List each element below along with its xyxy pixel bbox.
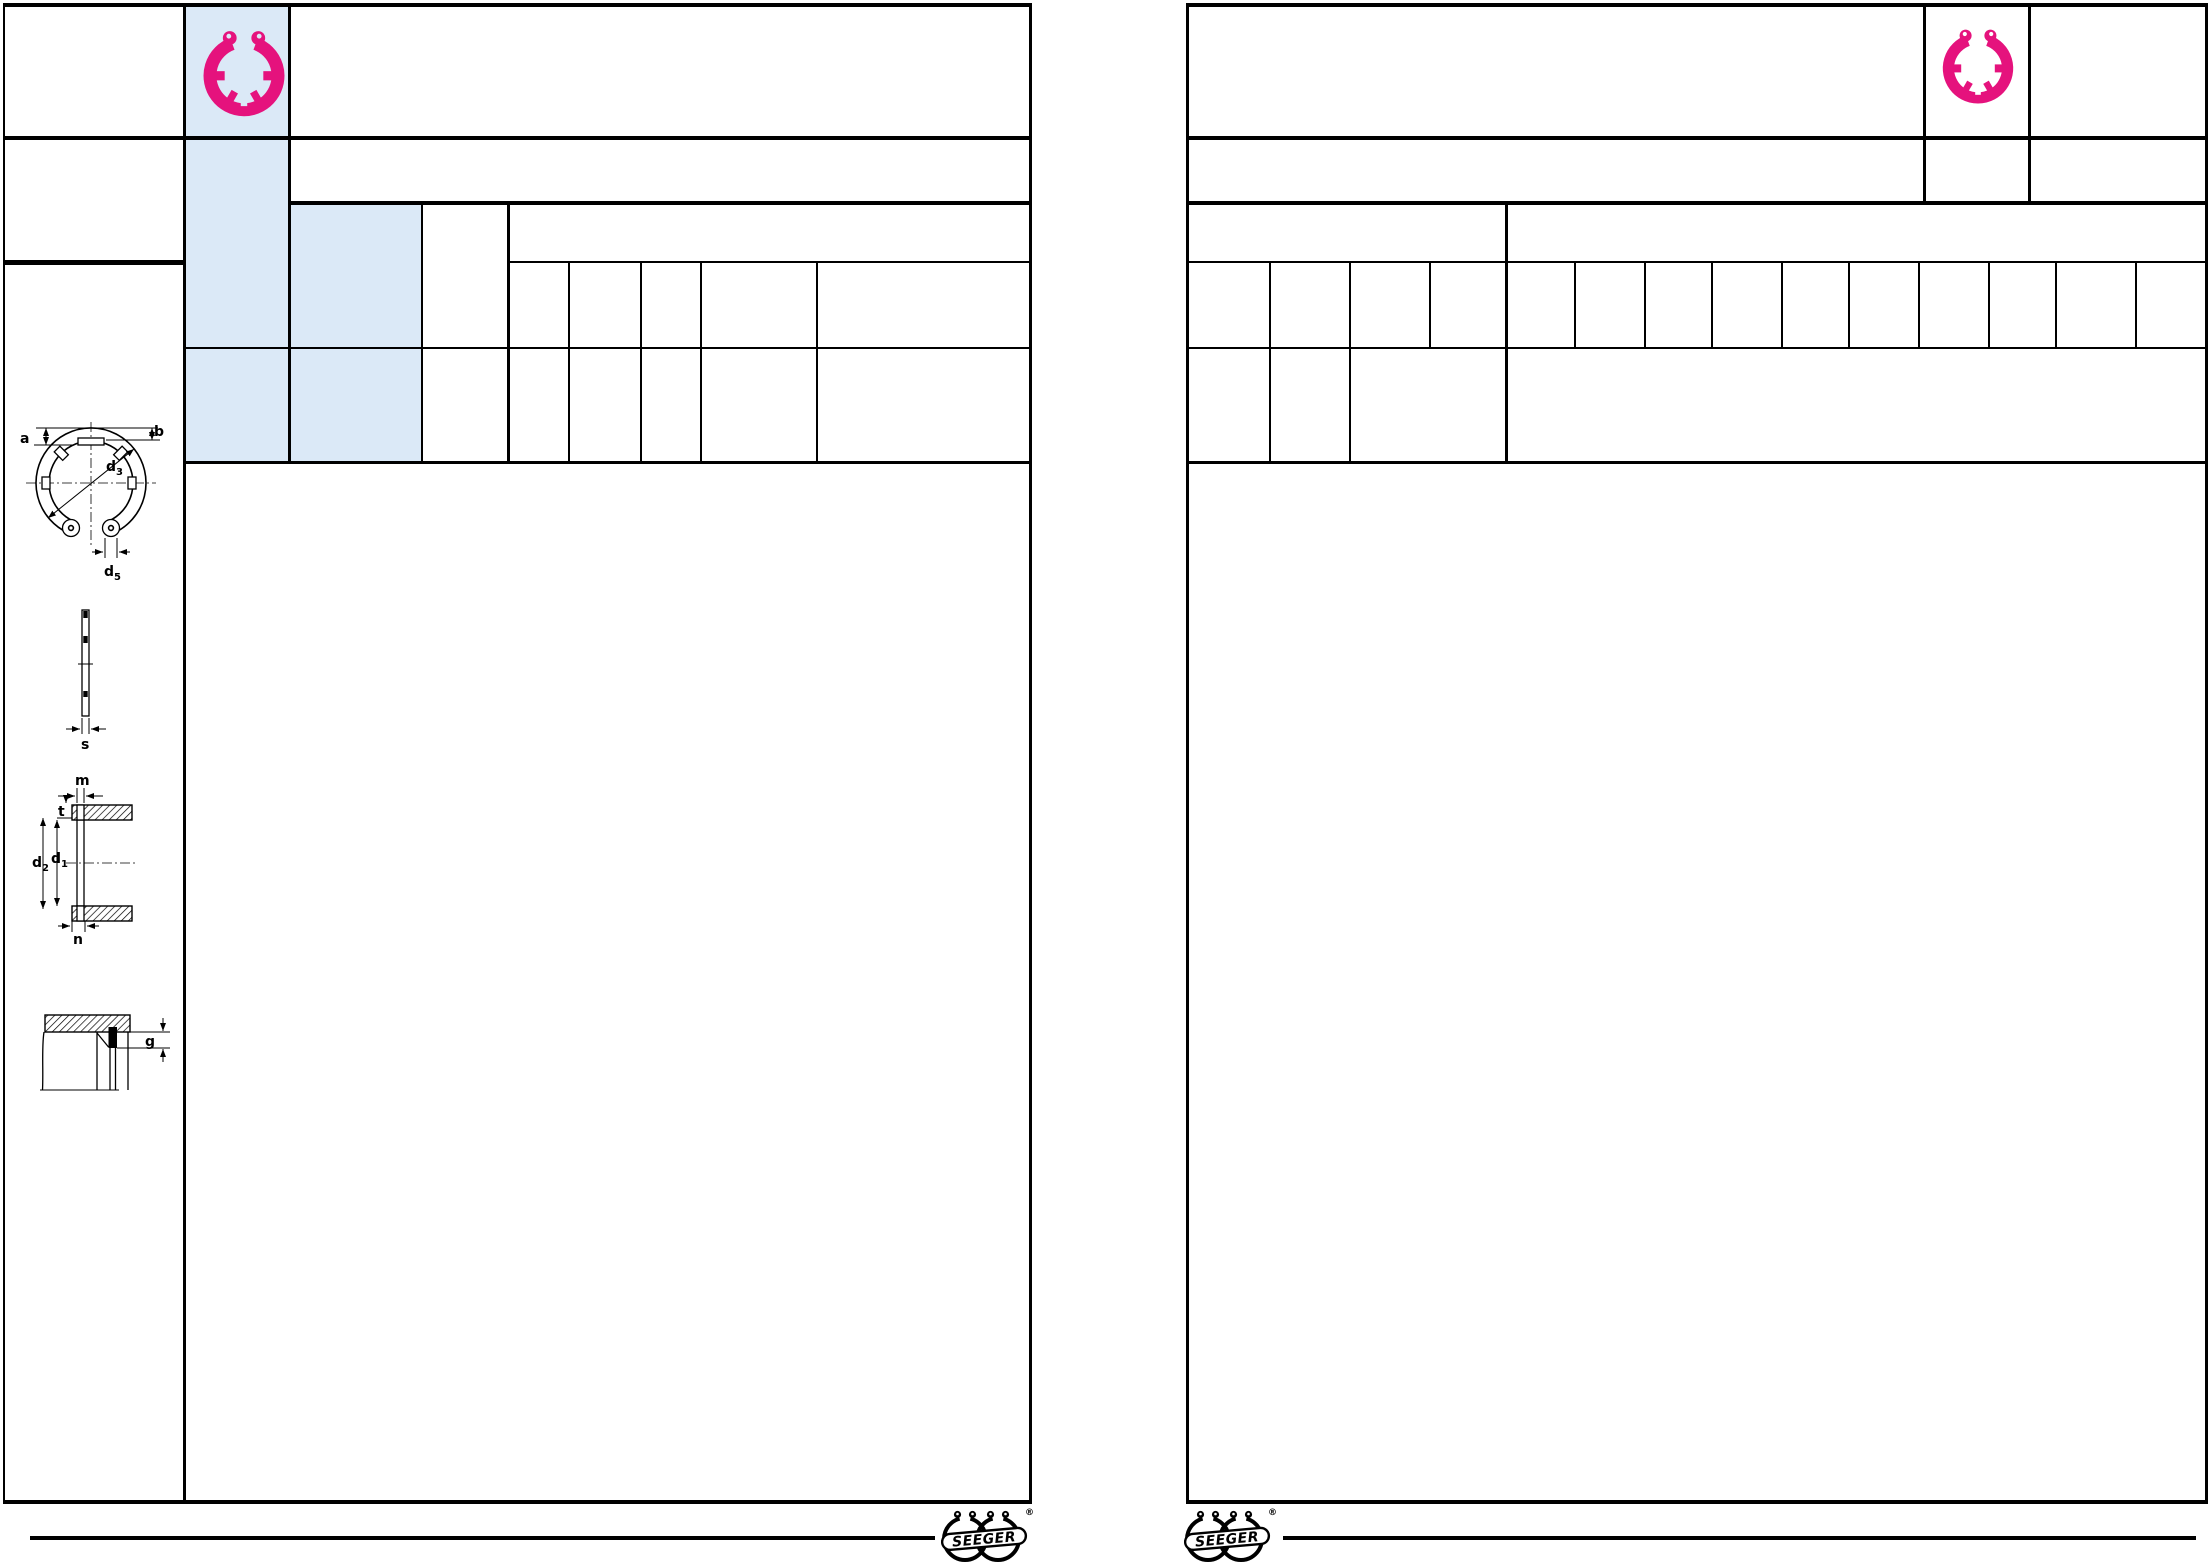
grid-line [4, 3, 1032, 7]
dim-label-a: a [20, 431, 29, 447]
grid-line [1505, 201, 1508, 463]
grid-line [1848, 261, 1850, 349]
header-cell-blue [290, 347, 423, 463]
grid-line [700, 261, 702, 463]
grid-line [1781, 261, 1783, 349]
seeger-logo: SEEGER ® [1184, 1506, 1278, 1568]
seeger-logo: SEEGER ® [941, 1506, 1035, 1568]
dim-label-n: n [73, 932, 83, 948]
dim-label-m: m [75, 773, 90, 789]
dim-label-g: g [145, 1034, 155, 1050]
grid-line [1186, 3, 2208, 7]
grid-line [1644, 261, 1646, 349]
grid-line [640, 261, 642, 463]
grid-line [1029, 3, 1032, 1504]
grid-line [185, 461, 1032, 464]
grid-line [507, 201, 510, 463]
grid-line [4, 1500, 1032, 1504]
circlip-icon [198, 26, 290, 120]
header-cell-blue [185, 347, 290, 463]
ring-front-view-drawing: a b d3 d5 [8, 416, 170, 582]
dim-label-s: s [81, 737, 89, 753]
circlip-icon [1938, 25, 2018, 107]
grid-line [3, 3, 5, 1504]
grid-line [1186, 201, 2208, 205]
grid-line [185, 347, 1032, 349]
grid-line [1429, 261, 1431, 349]
ring-side-view-drawing: s [56, 596, 120, 756]
dim-label-d1: d1 [51, 851, 68, 870]
grid-line [2028, 3, 2031, 205]
grid-line [568, 261, 570, 463]
grid-line [4, 136, 1032, 140]
grid-line [1186, 136, 2208, 140]
grid-line [508, 261, 1032, 263]
catalog-spread: a b d3 d5 s [0, 0, 2212, 1568]
grid-line [1186, 3, 1189, 1504]
grid-line [1186, 1500, 2208, 1504]
dim-label-t: t [58, 804, 65, 820]
grid-line [1711, 261, 1713, 349]
header-cell-blue [290, 201, 423, 349]
registered-mark: ® [1268, 1508, 1277, 1518]
grid-line [1988, 261, 1990, 349]
grid-line [4, 260, 186, 265]
dim-label-d2: d2 [32, 855, 49, 874]
header-cell-blue [185, 136, 290, 349]
grid-line [288, 201, 1032, 205]
grid-line [2205, 3, 2208, 1504]
grid-line [1923, 3, 1926, 205]
grid-line [1574, 261, 1576, 349]
grid-line [1283, 1536, 2196, 1540]
dim-label-b: b [154, 424, 164, 440]
grid-line [30, 1536, 935, 1540]
groove-section-drawing: m t d2 d1 n [10, 770, 170, 950]
grid-line [1349, 261, 1351, 463]
grid-line [2135, 261, 2137, 349]
dim-label-d3: d3 [106, 459, 123, 478]
grid-line [1186, 461, 2208, 464]
grid-line [816, 261, 818, 463]
grid-line [183, 3, 186, 1504]
edge-detail-drawing: g [15, 1005, 185, 1105]
dim-label-d5: d5 [104, 564, 121, 582]
grid-line [1918, 261, 1920, 349]
grid-line [2055, 261, 2057, 349]
grid-line [421, 201, 423, 463]
grid-line [1269, 261, 1271, 463]
registered-mark: ® [1025, 1508, 1034, 1518]
